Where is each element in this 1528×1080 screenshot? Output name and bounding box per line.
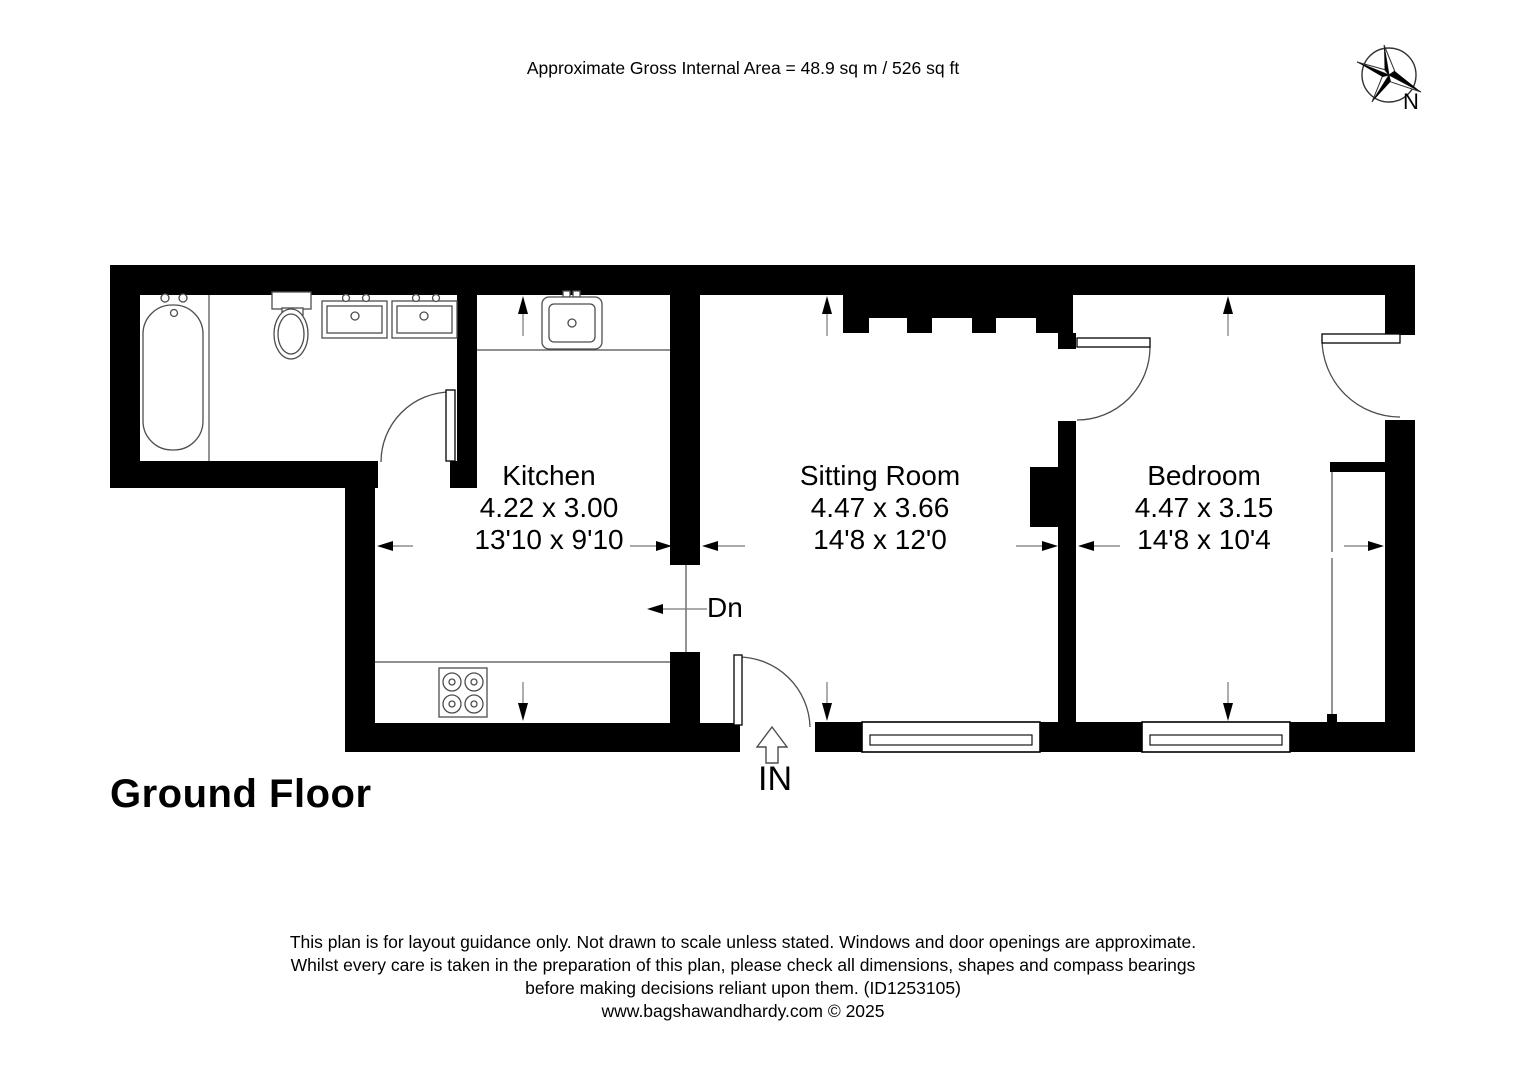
disclaimer-footer: This plan is for layout guidance only. N… xyxy=(290,931,1196,1023)
room-dimensions-metric: 4.47 x 3.15 xyxy=(1135,492,1274,524)
wall-right-upper xyxy=(1385,265,1415,335)
bathroom-fixtures xyxy=(143,292,457,450)
entrance-door xyxy=(734,655,810,727)
bath-tap xyxy=(179,294,187,302)
bathtub xyxy=(143,294,203,450)
compass-north-label: N xyxy=(1403,89,1419,115)
kitchen-right-arrow xyxy=(630,541,672,551)
disclaimer-line-2: Whilst every care is taken in the prepar… xyxy=(290,954,1196,977)
wall-bottom-right xyxy=(1290,722,1415,752)
floor-title: Ground Floor xyxy=(110,772,372,817)
wall-bathroom-bottom xyxy=(110,461,378,488)
toilet-cistern xyxy=(272,292,311,309)
bedroom-up-arrow xyxy=(1223,296,1233,336)
floorplan-page: Approximate Gross Internal Area = 48.9 s… xyxy=(0,0,1528,1080)
wall-bathroom-door-stub xyxy=(450,461,477,488)
wall-top xyxy=(110,265,1415,295)
disclaimer-line-3: before making decisions reliant upon the… xyxy=(290,977,1196,1000)
room-dimensions-metric: 4.47 x 3.66 xyxy=(800,492,960,524)
kitchen-left-arrow xyxy=(377,541,413,551)
kitchen-sink xyxy=(542,291,602,349)
gross-internal-area-text: Approximate Gross Internal Area = 48.9 s… xyxy=(527,58,959,79)
bath-drain xyxy=(171,310,178,317)
wall-sitting-bedroom-stub xyxy=(1058,333,1076,349)
website-copyright: www.bagshawandhardy.com © 2025 xyxy=(290,1000,1196,1023)
room-name: Kitchen xyxy=(474,460,623,492)
wall-kitchen-sitting-lower xyxy=(670,652,700,752)
bedroom-right-door xyxy=(1322,334,1400,417)
wall-step-left xyxy=(345,461,375,726)
wall-bottom-pier xyxy=(1040,722,1142,752)
basin-2 xyxy=(392,295,457,339)
wall-bathroom-kitchen xyxy=(457,295,477,465)
chimney-breast xyxy=(1030,467,1058,527)
bedroom-window xyxy=(1142,722,1290,752)
sitting-right-arrow xyxy=(1016,541,1058,551)
room-dimensions-imperial: 14'8 x 10'4 xyxy=(1135,524,1274,556)
sitting-left-arrow xyxy=(702,541,745,551)
disclaimer-line-1: This plan is for layout guidance only. N… xyxy=(290,931,1196,954)
entrance-arrow-icon xyxy=(757,727,787,763)
wall-kitchen-sitting-upper xyxy=(670,295,700,565)
floor-plan-drawing xyxy=(0,0,1528,1080)
hob xyxy=(439,668,487,717)
bedroom-down-arrow xyxy=(1223,682,1233,721)
sitting-up-arrow xyxy=(822,296,832,336)
toilet xyxy=(272,292,311,359)
wall-closet-stub xyxy=(1330,462,1385,472)
kitchen-down-arrow xyxy=(518,682,528,721)
bedroom-right-arrow xyxy=(1344,541,1384,551)
kitchen-label: Kitchen 4.22 x 3.00 13'10 x 9'10 xyxy=(474,460,623,556)
wall-bottom-sitting-left xyxy=(815,722,862,752)
room-name: Bedroom xyxy=(1135,460,1274,492)
bath-tap xyxy=(161,294,169,302)
entrance-in-label: IN xyxy=(758,760,792,799)
room-dimensions-imperial: 14'8 x 12'0 xyxy=(800,524,960,556)
wall-sitting-bedroom xyxy=(1058,421,1076,722)
closet-end-block xyxy=(1327,714,1337,722)
bedroom-door xyxy=(1077,338,1150,420)
room-dimensions-imperial: 13'10 x 9'10 xyxy=(474,524,623,556)
stairs-direction-arrow xyxy=(647,604,707,614)
wall-left xyxy=(110,265,140,488)
sitting-room-label: Sitting Room 4.47 x 3.66 14'8 x 12'0 xyxy=(800,460,960,556)
bedroom-left-arrow xyxy=(1078,541,1120,551)
wall-band-notches xyxy=(869,318,1036,333)
bedroom-label: Bedroom 4.47 x 3.15 14'8 x 10'4 xyxy=(1135,460,1274,556)
room-dimensions-metric: 4.22 x 3.00 xyxy=(474,492,623,524)
basin-1 xyxy=(322,295,387,339)
kitchen-up-arrow xyxy=(518,296,528,336)
sitting-room-window xyxy=(862,722,1040,752)
room-name: Sitting Room xyxy=(800,460,960,492)
stairs-down-label: Dn xyxy=(707,592,743,624)
sitting-down-arrow xyxy=(822,682,832,721)
wall-right-lower xyxy=(1385,420,1415,752)
bathroom-door xyxy=(381,390,455,462)
